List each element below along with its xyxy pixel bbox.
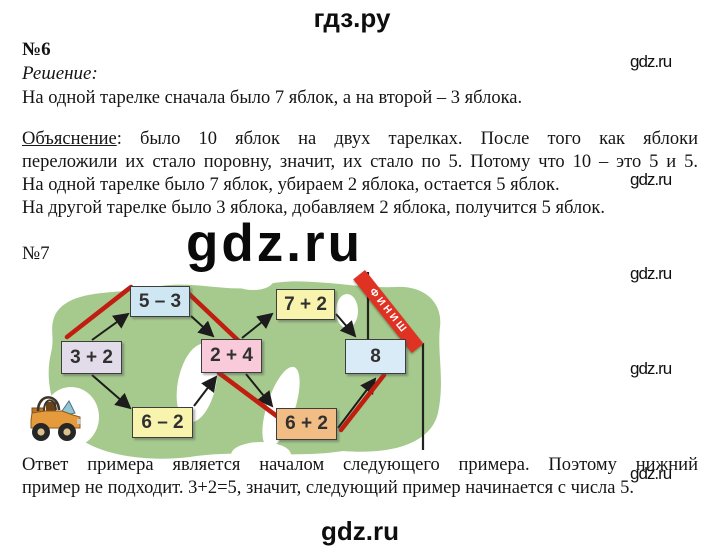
task6-solution-label: Решение: xyxy=(22,63,98,85)
expr-box-7-plus-2: 7 + 2 xyxy=(276,289,335,320)
watermark-gdz-1: gdz.ru xyxy=(630,52,690,72)
gdz-solution-page: гдз.ру gdz.ru gdz.ru gdz.ru gdz.ru gdz.r… xyxy=(0,0,720,551)
task6-solution-text: На одной тарелке сначала было 7 яблок, а… xyxy=(22,87,522,110)
answer-line-1: Ответ примера является началом следующег… xyxy=(22,454,698,477)
expr-box-2-plus-4: 2 + 4 xyxy=(201,339,262,373)
explanation-line-1-text: : было 10 яблок на двух тарелках. После … xyxy=(117,129,698,149)
jeep-icon xyxy=(29,386,83,446)
task7-route-diagram: ФИНИШ 3 + 2 5 – 3 6 – 2 2 + 4 7 + 2 6 + … xyxy=(25,265,460,465)
expr-box-5-minus-3: 5 – 3 xyxy=(130,286,190,317)
explanation-line-3: На одной тарелке было 7 яблок, убираем 2… xyxy=(22,174,698,197)
task6-explanation: Объяснение: было 10 яблок на двух тарелк… xyxy=(22,128,698,220)
expr-box-6-plus-2: 6 + 2 xyxy=(276,408,337,440)
task6-number: №6 xyxy=(22,39,51,61)
explanation-line-1: Объяснение: было 10 яблок на двух тарелк… xyxy=(22,128,698,151)
answer-line-2: пример не подходит. 3+2=5, значит, следу… xyxy=(22,477,698,500)
watermark-gdz-center: gdz.ru xyxy=(186,217,363,270)
watermark-gdz-4: gdz.ru xyxy=(630,359,690,379)
site-logo-header: гдз.ру xyxy=(0,3,704,34)
expr-box-3-plus-2: 3 + 2 xyxy=(61,341,122,374)
explanation-label: Объяснение xyxy=(22,129,117,149)
explanation-line-4: На другой тарелке было 3 яблока, добавля… xyxy=(22,197,698,220)
expr-box-8: 8 xyxy=(345,339,406,374)
expr-box-6-minus-2: 6 – 2 xyxy=(132,407,193,438)
task7-number: №7 xyxy=(22,243,50,265)
explanation-line-2: переложили их стало поровну, значит, их … xyxy=(22,151,698,174)
site-logo-footer: gdz.ru xyxy=(0,516,720,547)
task7-answer: Ответ примера является началом следующег… xyxy=(22,454,698,500)
watermark-gdz-3: gdz.ru xyxy=(630,264,690,284)
